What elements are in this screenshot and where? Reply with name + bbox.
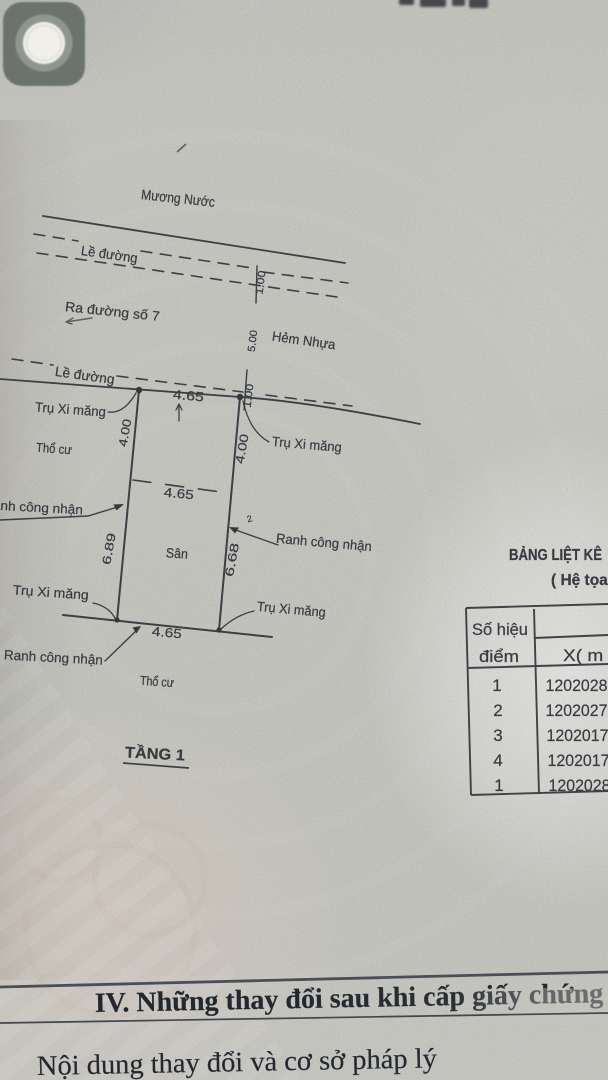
svg-text:1202017: 1202017	[548, 751, 608, 770]
svg-text:4: 4	[493, 751, 502, 770]
svg-text:2: 2	[493, 701, 502, 720]
svg-text:BẢNG LIỆT KÊ: BẢNG LIỆT KÊ	[509, 546, 602, 564]
svg-text:4.65: 4.65	[172, 387, 204, 405]
svg-text:4.65: 4.65	[151, 624, 182, 642]
svg-text:1202028: 1202028	[549, 776, 608, 795]
svg-text:Sân: Sân	[165, 545, 188, 561]
svg-text:Thổ cư: Thổ cư	[139, 673, 174, 690]
svg-text:3: 3	[493, 726, 502, 745]
svg-text:1202017: 1202017	[547, 726, 608, 745]
svg-text:( Hệ tọa độ: ( Hệ tọa độ	[551, 572, 608, 589]
svg-text:4.65: 4.65	[163, 485, 194, 503]
svg-text:1202027: 1202027	[546, 701, 608, 720]
svg-text:Thổ cư: Thổ cư	[35, 440, 72, 457]
svg-text:TẦNG 1: TẦNG 1	[125, 744, 186, 764]
svg-text:điểm: điểm	[479, 647, 519, 666]
svg-text:1: 1	[494, 776, 503, 795]
svg-text:1202028: 1202028	[546, 676, 608, 695]
svg-text:X( m ): X( m )	[563, 646, 608, 665]
svg-text:Số hiệu: Số hiệu	[472, 620, 528, 639]
svg-text:1: 1	[492, 676, 501, 695]
